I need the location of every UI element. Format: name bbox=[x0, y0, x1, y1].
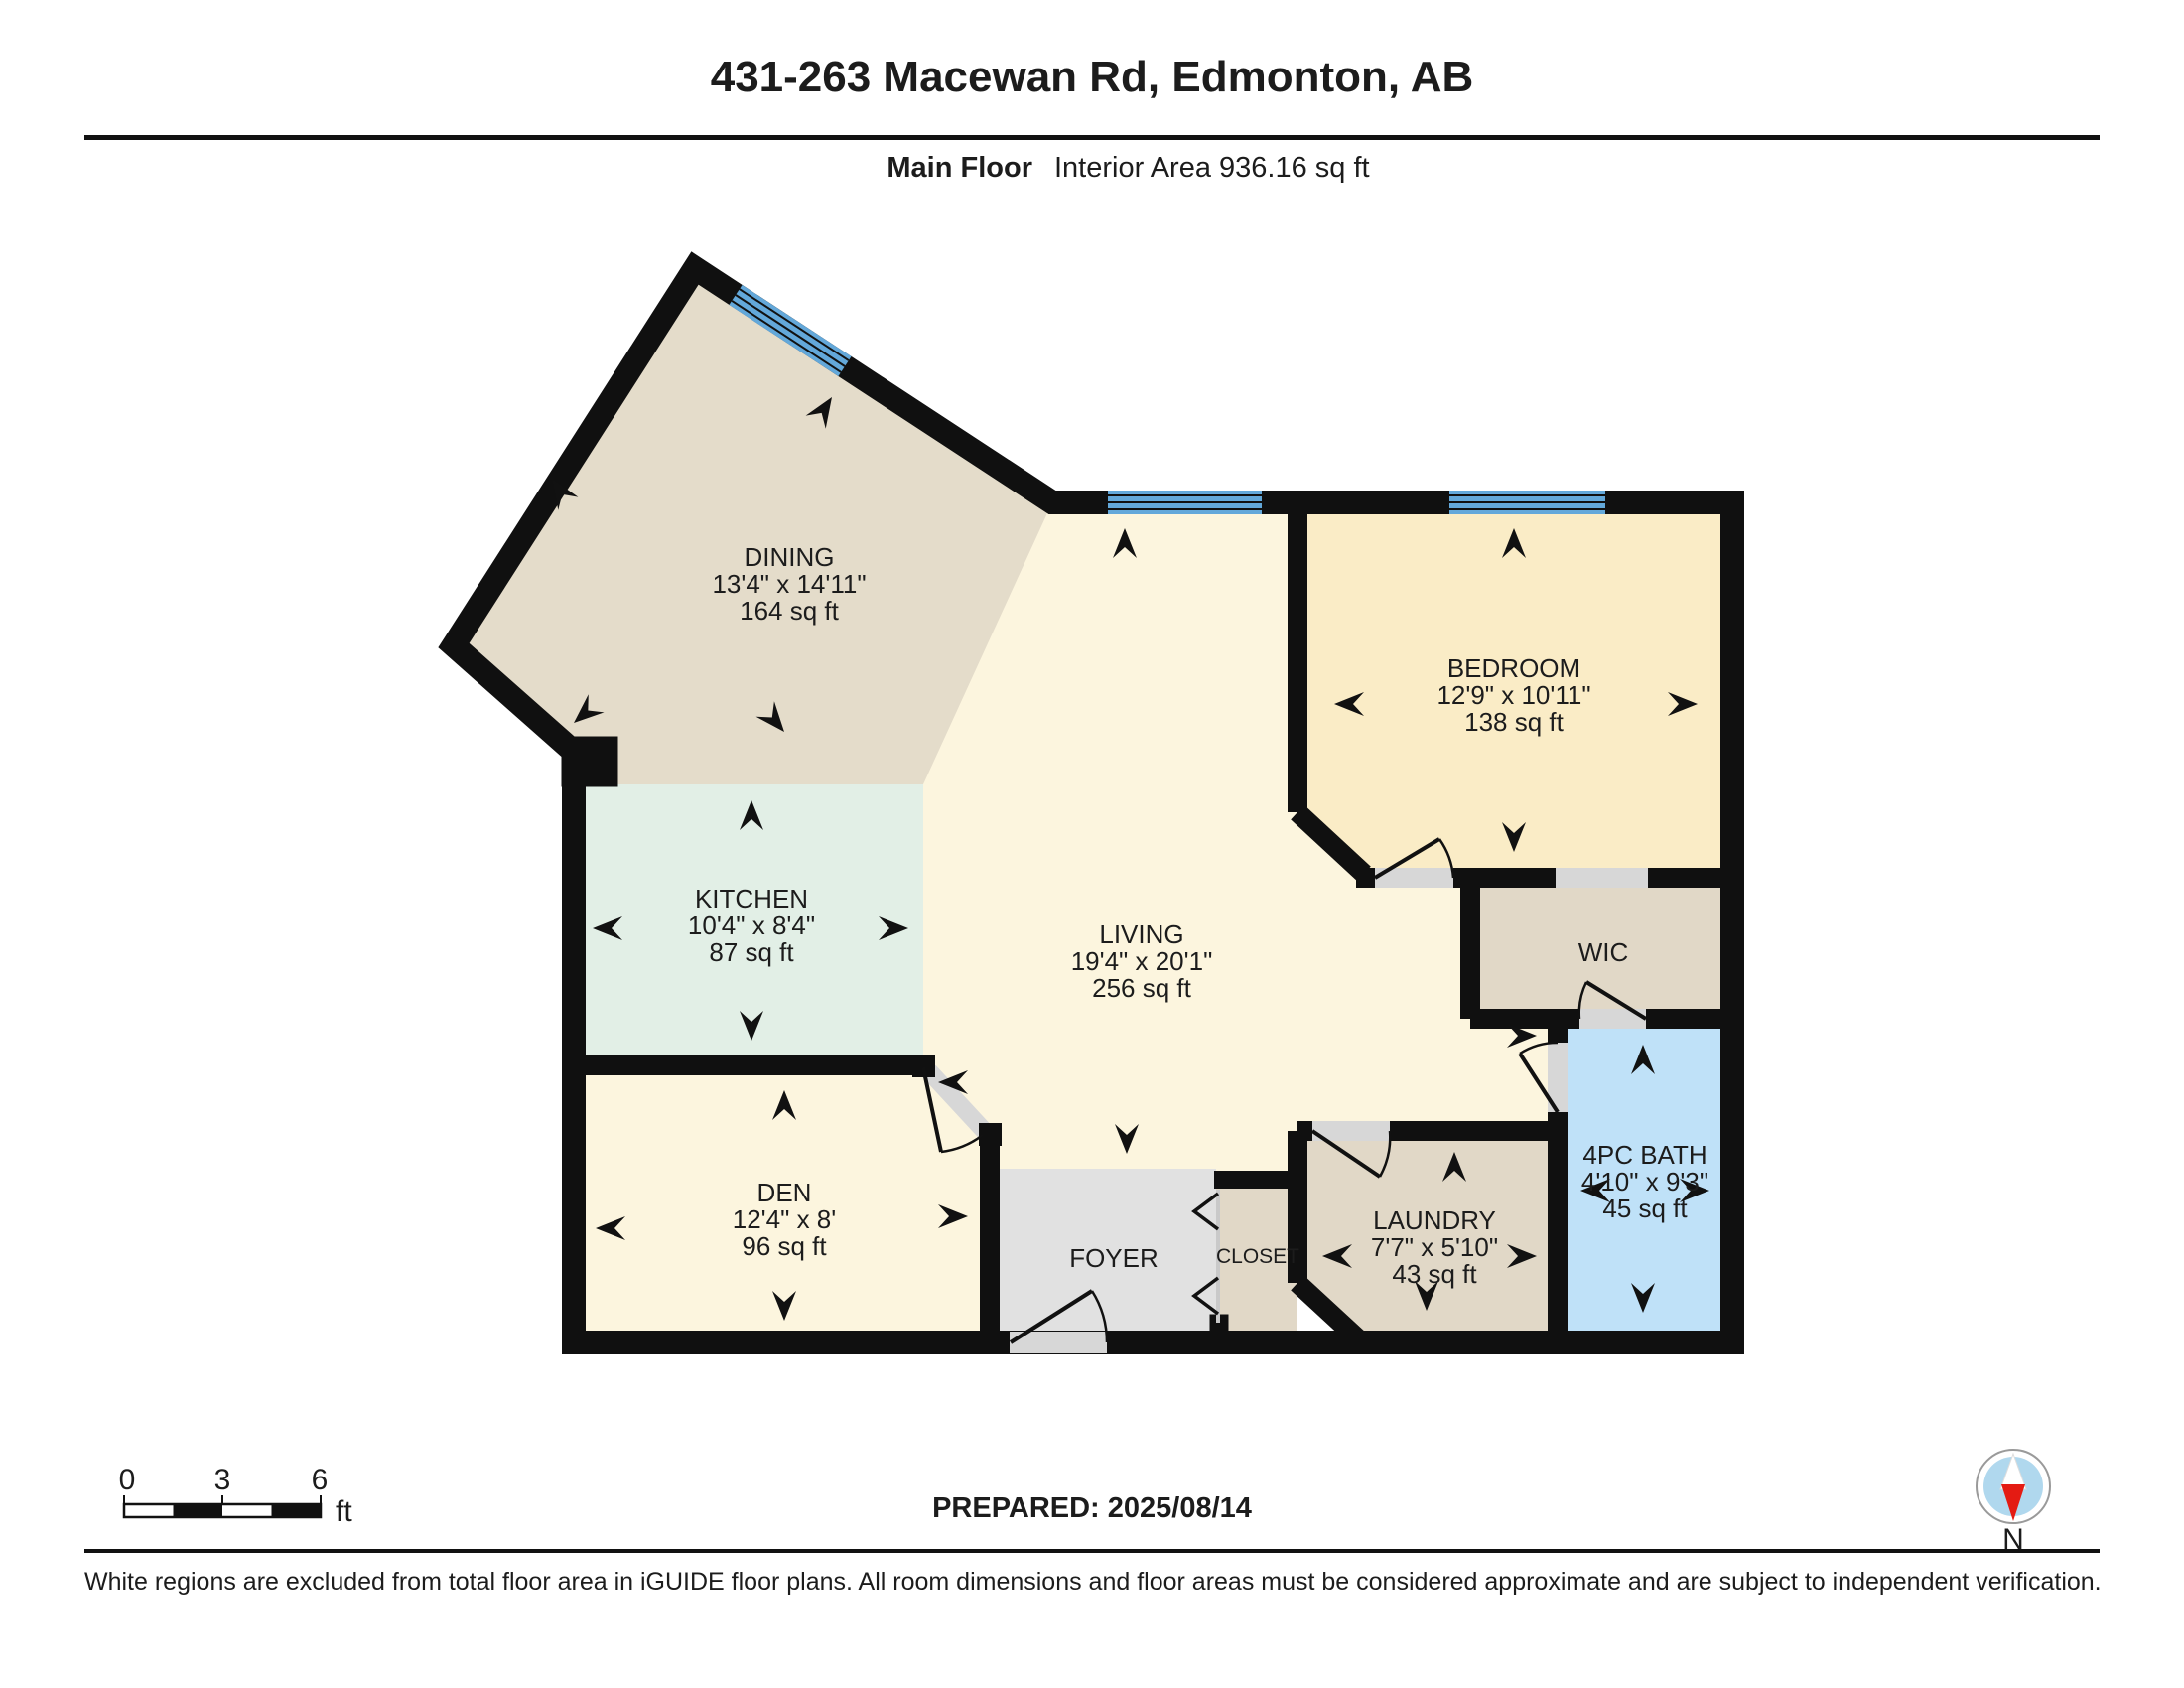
window-bedroom bbox=[1449, 495, 1605, 509]
label-kitchen-name: KITCHEN bbox=[695, 884, 808, 914]
disclaimer-text: White regions are excluded from total fl… bbox=[84, 1568, 2102, 1596]
label-den-area: 96 sq ft bbox=[742, 1231, 827, 1261]
label-kitchen-dims: 10'4" x 8'4" bbox=[688, 911, 815, 940]
footer-rule bbox=[84, 1549, 2100, 1553]
label-bedroom-dims: 12'9" x 10'11" bbox=[1436, 680, 1590, 710]
floor-label: Main Floor bbox=[887, 152, 1032, 184]
label-living-name: LIVING bbox=[1099, 919, 1183, 949]
label-bath-area: 45 sq ft bbox=[1602, 1194, 1688, 1223]
label-living-area: 256 sq ft bbox=[1092, 973, 1192, 1003]
label-closet: CLOSET bbox=[1216, 1245, 1299, 1268]
room-fills bbox=[454, 268, 1732, 1342]
label-kitchen-area: 87 sq ft bbox=[709, 937, 794, 967]
label-laundry-dims: 7'7" x 5'10" bbox=[1371, 1232, 1498, 1262]
label-laundry-name: LAUNDRY bbox=[1373, 1205, 1496, 1235]
interior-area-label: Interior Area 936.16 sq ft bbox=[1054, 152, 1370, 184]
label-dining-area: 164 sq ft bbox=[740, 596, 840, 626]
floor-plan-page: 431-263 Macewan Rd, Edmonton, AB Main Fl… bbox=[0, 0, 2184, 1688]
label-wic: WIC bbox=[1578, 937, 1629, 967]
label-bedroom-area: 138 sq ft bbox=[1464, 707, 1565, 737]
scale-tick-6: 6 bbox=[312, 1464, 329, 1496]
label-bath-dims: 4'10" x 9'3" bbox=[1581, 1167, 1708, 1196]
label-den-name: DEN bbox=[757, 1178, 812, 1207]
scale-tick-3: 3 bbox=[214, 1464, 231, 1496]
header-rule bbox=[84, 135, 2100, 140]
scale-tick-0: 0 bbox=[119, 1464, 136, 1496]
window-living bbox=[1108, 495, 1262, 509]
label-laundry-area: 43 sq ft bbox=[1392, 1259, 1477, 1289]
label-den-dims: 12'4" x 8' bbox=[733, 1204, 836, 1234]
scale-bar: 0 3 6 ft bbox=[119, 1464, 353, 1528]
label-dining-name: DINING bbox=[745, 542, 835, 572]
scale-unit: ft bbox=[336, 1495, 352, 1528]
wall-corner-block bbox=[562, 737, 617, 786]
prepared-date: PREPARED: 2025/08/14 bbox=[932, 1492, 1252, 1524]
label-dining-dims: 13'4" x 14'11" bbox=[712, 569, 866, 599]
page-title: 431-263 Macewan Rd, Edmonton, AB bbox=[711, 53, 1474, 101]
label-living-dims: 19'4" x 20'1" bbox=[1071, 946, 1213, 976]
label-bath-name: 4PC BATH bbox=[1582, 1140, 1706, 1170]
label-bedroom-name: BEDROOM bbox=[1447, 653, 1580, 683]
label-foyer: FOYER bbox=[1069, 1243, 1159, 1273]
compass: N bbox=[1977, 1450, 2050, 1556]
